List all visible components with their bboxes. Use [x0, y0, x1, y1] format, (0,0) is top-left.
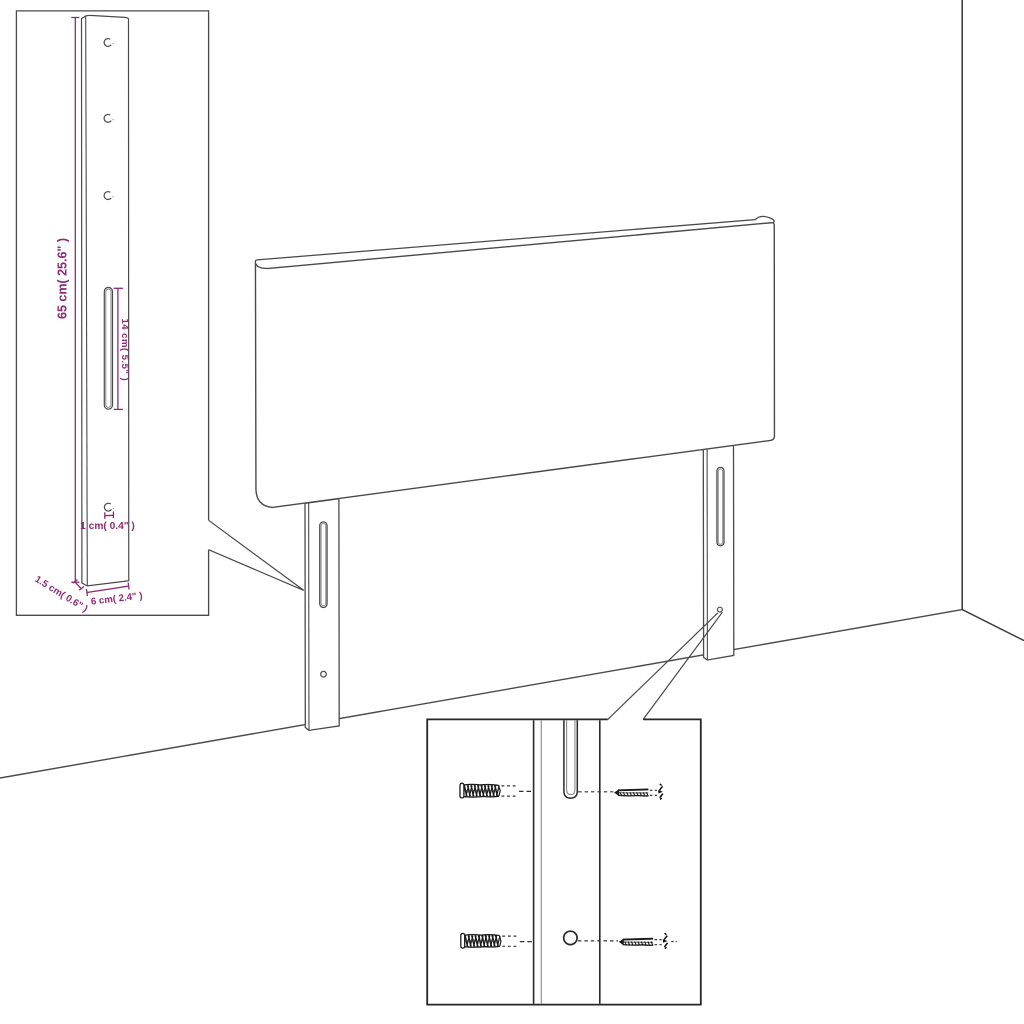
svg-text:14 cm( 5.5" ): 14 cm( 5.5" )	[119, 318, 130, 381]
svg-text:65 cm( 25.6" ): 65 cm( 25.6" )	[55, 238, 69, 319]
svg-text:1 cm( 0.4" ): 1 cm( 0.4" )	[80, 521, 135, 532]
